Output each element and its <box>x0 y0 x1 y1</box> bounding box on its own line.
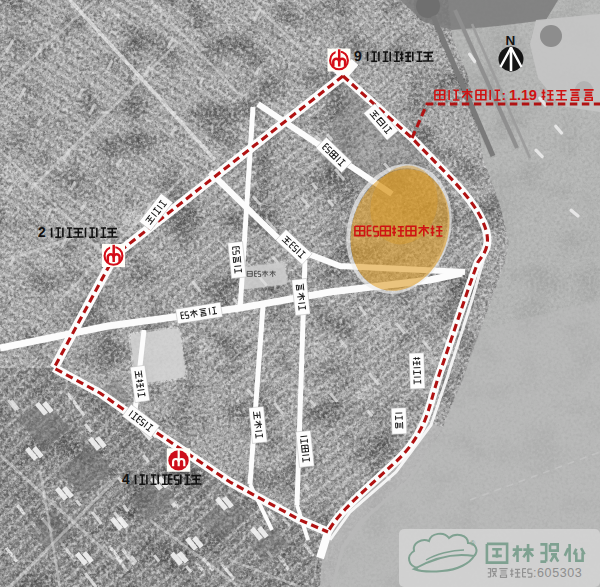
svg-text:9: 9 <box>354 49 362 64</box>
svg-text:®: ® <box>470 540 476 547</box>
svg-text::: : <box>502 88 507 103</box>
svg-text:N: N <box>506 33 516 48</box>
svg-text:4: 4 <box>122 472 130 487</box>
svg-text::605303: :605303 <box>533 566 582 580</box>
svg-text:9: 9 <box>529 87 537 103</box>
svg-text:2: 2 <box>38 225 46 240</box>
